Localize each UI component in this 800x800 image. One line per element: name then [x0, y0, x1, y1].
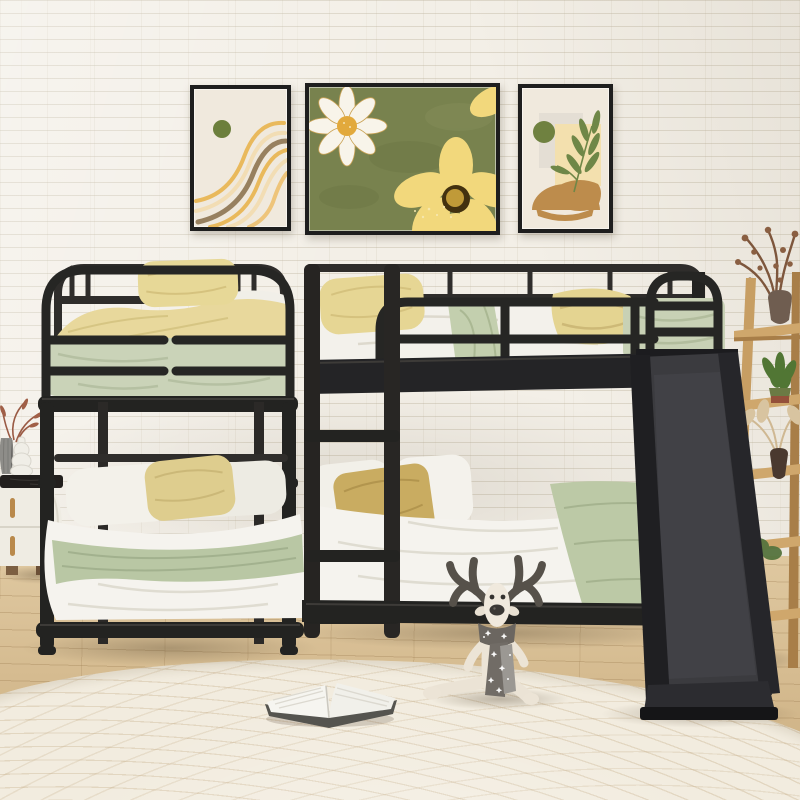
art-print-waves	[190, 85, 291, 231]
bottom-bunk-bedding	[44, 454, 304, 620]
slide-runout	[644, 681, 774, 711]
art-green-sun	[213, 120, 231, 138]
bedroom-scene	[0, 0, 800, 800]
eye	[490, 595, 495, 600]
left-bunk-bed	[18, 252, 318, 660]
eye	[501, 595, 506, 600]
drawer-handle	[10, 536, 15, 556]
art-wave-lines	[196, 123, 287, 227]
drawer-handle	[10, 498, 15, 518]
open-book	[255, 672, 405, 730]
bunk-feet	[38, 646, 298, 655]
nose	[490, 605, 505, 616]
art-print-botanical	[518, 84, 613, 233]
reindeer-plush	[420, 545, 570, 705]
slide-base	[640, 707, 778, 720]
slide	[588, 255, 800, 730]
nightstand-foot	[6, 566, 18, 575]
art-print-flowers	[305, 83, 500, 235]
art-green-dot	[533, 121, 555, 143]
